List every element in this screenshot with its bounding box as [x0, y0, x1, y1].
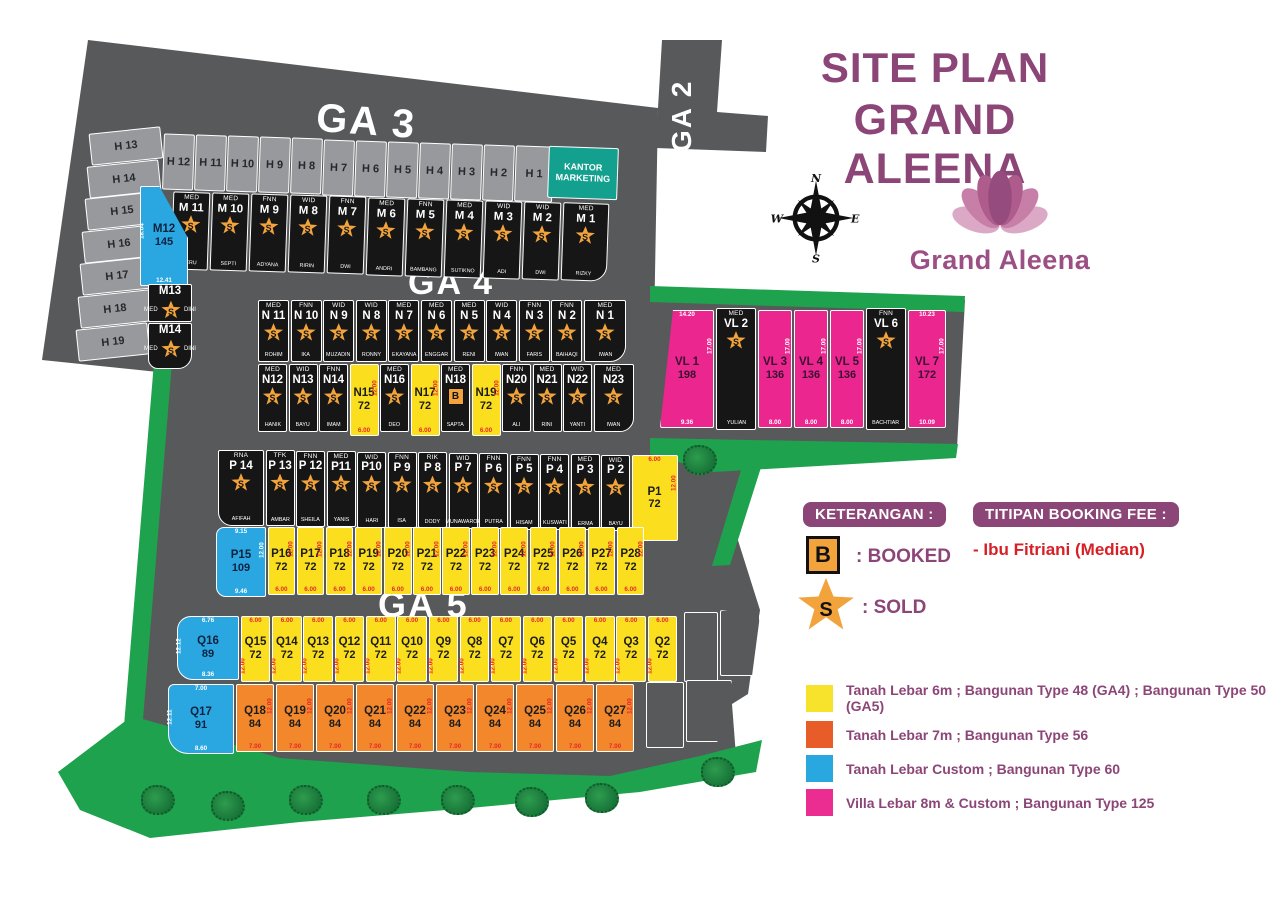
lot-Q10: Q10726.0012.00 [397, 616, 427, 682]
lot-type-code: MED [144, 346, 158, 352]
lot-VL2: MEDVL 2SYULIAN [716, 308, 756, 430]
lot-Q9: Q9726.0012.00 [429, 616, 459, 682]
lot-id: VL 3 [763, 356, 787, 369]
owner-name: DWI [535, 271, 546, 277]
lot-id: H 8 [298, 160, 316, 173]
dimension-label: 8.00 [841, 420, 853, 426]
lot-Q2: Q2726.0012.00 [648, 616, 678, 682]
lot-M6: MEDM 6SANDRI [366, 197, 406, 276]
lot-id: H 9 [266, 159, 284, 172]
lot-id: Q8 [467, 636, 482, 649]
lot-Q7: Q7726.0012.00 [491, 616, 521, 682]
lot-id: Q12 [339, 636, 361, 649]
lot-N2: FNNN 2SBAIHAQI [551, 300, 582, 362]
lot-P19: P19726.0012.00 [355, 527, 383, 595]
lot-area: 72 [508, 561, 520, 574]
lot-area: 72 [595, 561, 607, 574]
lot-P13: TFKP 13SAMBAR [266, 450, 295, 526]
lot-id: H 2 [490, 167, 508, 180]
lot-type-label: Tanah Lebar 6m ; Bangunan Type 48 (GA4) … [846, 682, 1280, 714]
title-line1: SITE PLAN [770, 44, 1100, 92]
dimension-label: 7.00 [289, 744, 301, 750]
dimension-label: 12.00 [491, 658, 497, 674]
lot-id: M 10 [217, 202, 243, 216]
lot-id: H 18 [103, 302, 127, 316]
owner-name: SUTIKNO [450, 269, 474, 275]
lot-id: Q17 [190, 706, 212, 719]
dimension-label: 17.00 [708, 339, 714, 355]
lot-type-label: Tanah Lebar Custom ; Bangunan Type 60 [846, 761, 1120, 777]
dimension-label: 6.00 [469, 618, 481, 624]
sold-star-icon: S [219, 216, 240, 236]
lot-type-row: Villa Lebar 8m & Custom ; Bangunan Type … [806, 789, 1280, 816]
lot-area: 72 [562, 649, 574, 662]
lot-area: 84 [529, 718, 541, 731]
lot-Q18: Q18847.0012.00 [236, 684, 274, 752]
lot-P24: P24726.0012.00 [500, 527, 528, 595]
lot-area: 198 [678, 369, 696, 382]
tree-icon [441, 785, 475, 815]
lot-N20: FNNN20SALI [502, 364, 531, 432]
dimension-label: 12.00 [289, 542, 295, 558]
lot-area: 72 [312, 649, 324, 662]
lot-id: N23 [603, 374, 624, 387]
lot-Q14: Q14726.0012.00 [272, 616, 302, 682]
lot-id: Q16 [197, 635, 219, 648]
lot-P8: RIKP 8SDODY [418, 452, 447, 528]
yellow-swatch [806, 685, 833, 712]
dimension-label: 6.00 [480, 428, 492, 434]
lot-M7: FNNM 7SDWI [327, 196, 367, 275]
dimension-label: 6.00 [421, 587, 433, 593]
lot-area: 72 [594, 649, 606, 662]
lot-area: 72 [304, 561, 316, 574]
dimension-label: 12.00 [638, 542, 644, 558]
lot-id: Q19 [284, 705, 306, 718]
owner-name: RIRIN [299, 264, 314, 270]
lot-M4: MEDM 4SSUTIKNO [444, 199, 484, 278]
lot-area: 84 [569, 718, 581, 731]
lot-type-label: Villa Lebar 8m & Custom ; Bangunan Type … [846, 795, 1154, 811]
owner-name: DWI [340, 266, 351, 272]
owner-name: IKA [302, 353, 311, 358]
dimension-label: 6.00 [375, 618, 387, 624]
sold-star-icon: S [385, 387, 405, 406]
lot-Q13: Q13726.0012.00 [303, 616, 333, 682]
lot-id: P 3 [576, 464, 593, 477]
lot-P7: WIDP 7SMUNAWAROH [449, 453, 478, 529]
owner-name: AFIFAH [232, 517, 251, 522]
lot-id: H 7 [330, 161, 348, 174]
lot-area: 91 [195, 719, 207, 732]
lot-Q26: Q26847.0012.00 [556, 684, 594, 752]
lot-id: M 9 [260, 203, 280, 216]
owner-name: ADYANA [256, 263, 278, 269]
lot-Q6: Q6726.0012.00 [523, 616, 553, 682]
lot-Q21: Q21847.0012.00 [356, 684, 394, 752]
lot-P3: MEDP 3SERMA [571, 454, 600, 530]
lot-Q16: Q16896.768.3612.12 [177, 616, 239, 680]
dimension-label: 12.00 [303, 658, 309, 674]
tree-icon [701, 757, 735, 787]
dimension-label: 12.00 [464, 542, 470, 558]
lot-M8: WIDM 8SRIRIN [288, 195, 328, 274]
dimension-label: 6.00 [419, 428, 431, 434]
lot-P6: FNNP 6SPUTRA [479, 453, 508, 529]
lot-Q4: Q4726.0012.00 [585, 616, 615, 682]
lot-type-row: Tanah Lebar 6m ; Bangunan Type 48 (GA4) … [806, 682, 1280, 714]
dimension-label: 9.36 [681, 420, 693, 426]
lot-P11: MEDP11SYANIS [327, 451, 356, 527]
lot-id: H 6 [362, 162, 380, 175]
lot-id: N 9 [330, 310, 348, 323]
owner-name: RINI [542, 423, 553, 428]
lot-area: 89 [202, 648, 214, 661]
lot-Q24: Q24847.0012.00 [476, 684, 514, 752]
lot-id: N21 [536, 374, 557, 387]
lot-id: P 14 [229, 460, 252, 473]
lot-area: 72 [531, 649, 543, 662]
dimension-label: 6.00 [312, 618, 324, 624]
lot-H9: H 9 [258, 137, 291, 194]
lot-id: Q5 [561, 636, 576, 649]
lot-id: Q11 [370, 636, 391, 649]
sold-star-icon: S [557, 323, 577, 342]
dimension-label: 7.00 [329, 744, 341, 750]
dimension-label: 6.00 [531, 618, 543, 624]
lot-P10: WIDP10SHARI [357, 452, 386, 528]
lot-N7: MEDN 7SEKAYANA [388, 300, 419, 362]
lot-id: P 2 [607, 464, 624, 477]
lot-area: 72 [469, 649, 481, 662]
dimension-label: 12.00 [372, 380, 378, 396]
lot-id: Q27 [604, 705, 626, 718]
dimension-label: 8.36 [202, 672, 214, 678]
lot-area: 72 [375, 649, 387, 662]
lot-id: N18 [445, 374, 466, 387]
booked-marker: B [448, 388, 464, 405]
lot-Q19: Q19847.0012.00 [276, 684, 314, 752]
dimension-label: 12.00 [494, 380, 500, 396]
dimension-label: 7.00 [195, 686, 207, 692]
sold-star-icon: S [575, 226, 596, 246]
lot-area: 72 [363, 561, 375, 574]
owner-name: YANTI [570, 423, 585, 428]
dimension-label: 12.00 [433, 380, 439, 396]
lot-area: 72 [281, 649, 293, 662]
lot-id: N14 [323, 374, 344, 387]
dimension-label: 6.00 [437, 618, 449, 624]
dimension-label: 12.00 [366, 658, 372, 674]
dimension-label: 12.00 [348, 699, 354, 715]
lot-P14: RNAP 14SAFIFAH [218, 450, 264, 526]
dimension-label: 6.00 [333, 587, 345, 593]
dimension-label: 7.00 [449, 744, 461, 750]
lot-id: H 17 [105, 269, 129, 283]
lot-N13: WIDN13SBAYU [289, 364, 318, 432]
lot-id: N 5 [460, 310, 478, 323]
lot-id: H 11 [199, 157, 222, 170]
lot-N9: WIDN 9SMUZADIN [323, 300, 354, 362]
dimension-label: 8.00 [805, 420, 817, 426]
lot-id: M 6 [377, 207, 397, 220]
lot-area: 72 [537, 561, 549, 574]
lot-id: Q15 [245, 636, 267, 649]
lot-Q5: Q5726.0012.00 [554, 616, 584, 682]
lot-id: Q26 [564, 705, 586, 718]
owner-name: BAYU [296, 423, 310, 428]
owner-name: RENI [463, 353, 476, 358]
lot-VL3: VL 31368.0017.00 [758, 310, 792, 428]
dimension-label: 7.00 [369, 744, 381, 750]
sold-star-icon: S [392, 475, 412, 494]
dimension-label: 6.00 [343, 618, 355, 624]
lot-Q27: Q27847.0012.00 [596, 684, 634, 752]
lot-H8: H 8 [290, 138, 323, 195]
lot-id: M 1 [576, 212, 596, 225]
dimension-label: 6.00 [656, 618, 668, 624]
lot-id: N 7 [395, 310, 413, 323]
lot-type-code: FNN [419, 201, 433, 208]
owner-name: FARIS [527, 353, 542, 358]
lot-id: N16 [384, 374, 405, 387]
lot-P17: P17726.0012.00 [297, 527, 325, 595]
lot-id: M 8 [299, 204, 319, 217]
lot-id: H 4 [426, 164, 444, 177]
lot-N5: MEDN 5SRENI [454, 300, 485, 362]
sold-star-icon: S [258, 217, 279, 237]
sold-star-icon: S [231, 473, 251, 492]
dimension-label: 17.00 [940, 339, 946, 355]
dimension-label: 12.00 [508, 699, 514, 715]
owner-name: YANIS [333, 519, 349, 524]
lot-P22: P22726.0012.00 [442, 527, 470, 595]
lot-Q8: Q8726.0012.00 [460, 616, 490, 682]
lot-area: 84 [409, 718, 421, 731]
tree-icon [515, 787, 549, 817]
sold-star-icon: S [270, 474, 290, 493]
lot-P9: FNNP 9SISA [388, 452, 417, 528]
dimension-label: 12.00 [585, 658, 591, 674]
dimension-label: 12.00 [435, 542, 441, 558]
blue-swatch [806, 755, 833, 782]
lot-area: 84 [369, 718, 381, 731]
dimension-label: 17.00 [822, 339, 828, 355]
booked-legend-label: : BOOKED [856, 546, 951, 568]
lot-area: 72 [450, 561, 462, 574]
lot-P21: P21726.0012.00 [413, 527, 441, 595]
lot-H10: H 10 [226, 136, 259, 193]
dimension-label: 10.23 [919, 312, 935, 318]
compass-w: W [771, 212, 785, 225]
lot-H11: H 11 [194, 135, 227, 192]
dimension-label: 12.00 [468, 699, 474, 715]
sold-star-icon: S [301, 474, 321, 493]
sold-star-icon: S [331, 474, 351, 493]
owner-name: SEPTI [221, 262, 237, 268]
dimension-label: 6.76 [202, 618, 214, 624]
dimension-label: 7.00 [609, 744, 621, 750]
lot-id: N 10 [294, 310, 318, 323]
dimension-label: 17.00 [858, 339, 864, 355]
lot-id: N22 [567, 374, 588, 387]
lot-Q11: Q11726.0012.00 [366, 616, 396, 682]
tree-icon [683, 445, 717, 475]
lot-id: P 12 [299, 460, 322, 473]
owner-name: MUNAWAROH [445, 520, 481, 525]
lot-N12: MEDN12SHANIK [258, 364, 287, 432]
lot-Q17: Q17917.008.6012.11 [168, 684, 234, 754]
dimension-label: 12.00 [647, 658, 653, 674]
sold-star-icon: S [297, 218, 318, 238]
owner-name: EKAYANA [392, 353, 416, 358]
dimension-label: 12.00 [260, 542, 266, 558]
dimension-label: 6.00 [648, 457, 660, 463]
keterangan-badge: KETERANGAN : [803, 502, 946, 527]
sold-star-icon: S [394, 323, 414, 342]
lot-P5: FNNP 5SHISAM [510, 454, 539, 530]
dimension-label: 9.15 [235, 529, 247, 535]
dimension-label: 17.00 [786, 339, 792, 355]
lot-id: VL 7 [915, 356, 939, 369]
lot-P15: P151099.159.4612.00 [216, 527, 266, 597]
lot-VL6: FNNVL 6SBACHTIAR [866, 308, 906, 430]
lot-id: N 8 [362, 310, 380, 323]
lot-id: H 12 [167, 156, 191, 169]
sold-star-icon: S [453, 222, 474, 242]
lot-M9: FNNM 9SADYANA [249, 194, 289, 273]
lot-VL4: VL 41368.0017.00 [794, 310, 828, 428]
lot-Q12: Q12726.0012.00 [335, 616, 365, 682]
compass-e: E [850, 212, 860, 225]
lot-N17: N17726.0012.00 [411, 364, 440, 436]
lot-M14: M14MEDSDINI [148, 323, 192, 369]
owner-name: DODY [425, 520, 440, 525]
lot-id: Q7 [498, 636, 513, 649]
lot-id: P11 [331, 461, 351, 474]
pink-swatch [806, 789, 833, 816]
lot-id: N 1 [596, 310, 614, 323]
dimension-label: 12.00 [241, 658, 247, 674]
sold-star-icon: S [545, 477, 565, 496]
sold-star-icon: S [459, 323, 479, 342]
owner-name: AMBAR [271, 518, 290, 523]
dimension-label: 6.00 [624, 587, 636, 593]
lot-M2: WIDM 2SDWI [522, 201, 562, 280]
owner-name: SHEILA [301, 518, 320, 523]
lot-id: H 19 [101, 334, 125, 348]
lot-N19: N19726.0012.00 [472, 364, 501, 436]
lot-id: Q22 [404, 705, 426, 718]
lot-id: Q20 [324, 705, 346, 718]
sold-star-icon: S [453, 476, 473, 495]
lot-H5: H 5 [386, 141, 419, 198]
lot-H4: H 4 [418, 142, 451, 199]
lot-type-legend: Tanah Lebar 6m ; Bangunan Type 48 (GA4) … [806, 682, 1280, 823]
owner-name: BAIHAQI [556, 353, 578, 358]
sold-star-icon: S [876, 331, 896, 350]
lot-N14: FNNN14SIMAM [319, 364, 348, 432]
lot-id: P 9 [393, 462, 410, 475]
lot-area: 72 [358, 400, 370, 413]
lot-id: M 11 [179, 201, 204, 215]
owner-name: PUTRA [484, 521, 502, 526]
lot-M13: M13MEDSDINI [148, 284, 192, 322]
sold-star-icon: S [296, 323, 316, 342]
lot-H3: H 3 [450, 143, 483, 200]
lot-id: N 4 [493, 310, 511, 323]
lot-id: M14 [159, 324, 181, 337]
dimension-label: 6.00 [537, 587, 549, 593]
sold-star-icon: S [537, 387, 557, 406]
lot-id: H 10 [231, 158, 255, 171]
lot-N15: N15726.0012.00 [350, 364, 379, 436]
dimension-label: 6.00 [406, 618, 418, 624]
dimension-label: 6.00 [566, 587, 578, 593]
lot-type-row: Tanah Lebar 7m ; Bangunan Type 56 [806, 721, 1280, 748]
sold-star-icon: S [726, 331, 746, 350]
lot-id: Q13 [307, 636, 329, 649]
lot-M10: MEDM 10SSEPTI [210, 192, 250, 271]
lot-id: P 5 [515, 463, 532, 476]
lot-id: P15 [231, 549, 251, 562]
lot-M5: FNNM 5SBAMBANG [405, 198, 445, 277]
dimension-label: 12.00 [268, 699, 274, 715]
lot-M1: MEDM 1SRIZKY [561, 202, 610, 282]
lot-area: 72 [392, 561, 404, 574]
sold-star-icon: S [362, 475, 382, 494]
dimension-label: 12.00 [522, 658, 528, 674]
owner-name: HANIK [264, 423, 280, 428]
tree-icon [289, 785, 323, 815]
lot-area: 72 [480, 400, 492, 413]
lot-area: 172 [918, 369, 936, 382]
owner-name: KUSWATI [543, 521, 567, 526]
lot-P28: P28726.0012.00 [617, 527, 645, 595]
owner-name: BAMBANG [410, 268, 437, 274]
lot-id: N13 [292, 374, 313, 387]
orange-swatch [806, 721, 833, 748]
dimension-label: 6.00 [594, 618, 606, 624]
lot-type-code: MED [144, 307, 158, 313]
lot-area: 72 [406, 649, 418, 662]
sold-star-icon: S [492, 323, 512, 342]
lot-id: H 5 [394, 163, 412, 176]
lot-id: VL 4 [799, 356, 823, 369]
lot-area: 72 [648, 498, 660, 511]
sold-star-icon: S [606, 478, 626, 497]
compass-rose-icon: N E S W [770, 172, 862, 264]
lot-area: 84 [449, 718, 461, 731]
dimension-label: 12.00 [428, 699, 434, 715]
lot-id: Q24 [484, 705, 506, 718]
dimension-label: 6.00 [479, 587, 491, 593]
lot-id: N 3 [525, 310, 543, 323]
lot-id: N12 [262, 374, 283, 387]
lot-id: H 15 [109, 204, 133, 218]
dimension-label: 12.00 [554, 658, 560, 674]
dimension-label: 8.60 [195, 746, 207, 752]
tree-icon [211, 791, 245, 821]
lot-H2: H 2 [482, 144, 515, 201]
lot-area: 72 [249, 649, 261, 662]
lot-H6: H 6 [354, 140, 387, 197]
tree-icon [585, 783, 619, 813]
owner-name: YULIAN [726, 421, 745, 426]
dimension-label: 12.11 [168, 709, 174, 724]
dimension-label: 7.00 [529, 744, 541, 750]
dimension-label: 6.00 [595, 587, 607, 593]
